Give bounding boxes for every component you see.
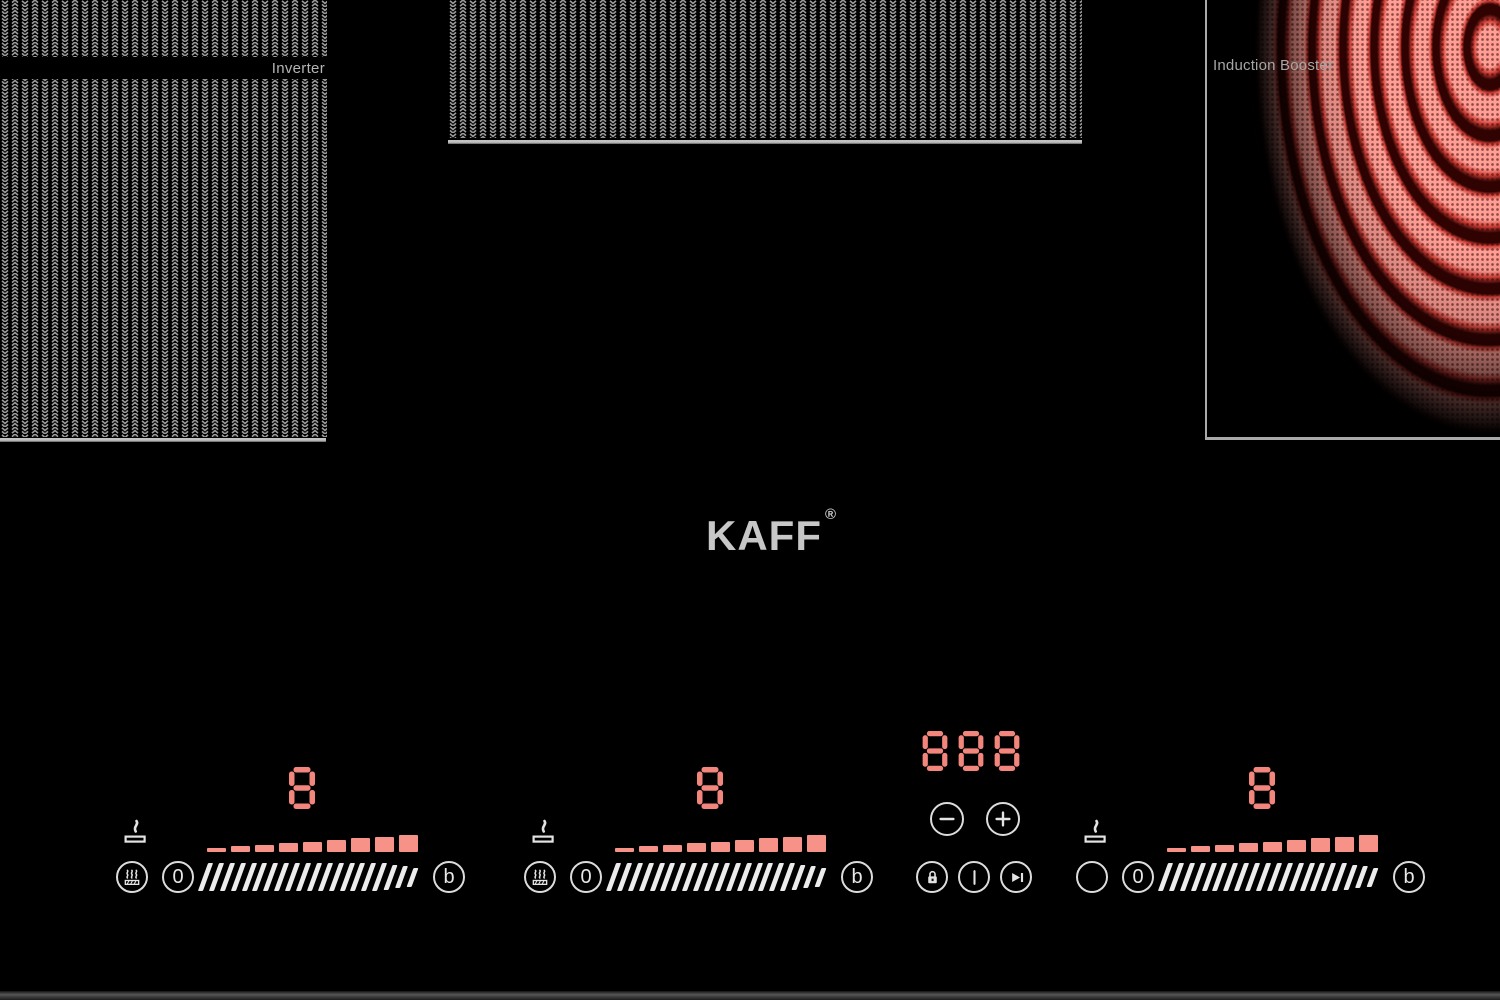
power-bar (1287, 840, 1306, 852)
inverter-label: Inverter (272, 60, 325, 77)
power-level-bars (615, 832, 837, 852)
zone-controls-front-right: 0 b (1070, 720, 1440, 905)
power-level-display (289, 767, 315, 809)
power-level-bars (1167, 832, 1389, 852)
minus-button[interactable] (930, 802, 964, 836)
power-bar (1359, 835, 1378, 852)
keep-warm-icon (530, 867, 550, 887)
power-bar (639, 846, 658, 852)
power-bar (375, 837, 394, 852)
booster-zone-frame: Induction Booster (1205, 0, 1500, 440)
zone-underline-left (0, 438, 326, 442)
plus-button[interactable] (986, 802, 1020, 836)
zone-select-button[interactable] (1076, 861, 1108, 893)
keep-warm-button[interactable] (524, 861, 556, 893)
inverter-band: Inverter (0, 57, 327, 79)
power-slider[interactable] (203, 863, 425, 891)
power-bar (279, 843, 298, 852)
boost-button[interactable]: b (841, 861, 873, 893)
power-bar (615, 848, 634, 852)
pause-play-button[interactable] (1000, 861, 1032, 893)
power-bar (735, 840, 754, 852)
power-bar (711, 842, 730, 853)
residual-heat-icon (124, 819, 146, 845)
boost-button[interactable]: b (433, 861, 465, 893)
power-level-bars (207, 832, 429, 852)
power-bar (351, 838, 370, 852)
power-bar (1167, 848, 1186, 852)
power-bar (807, 835, 826, 852)
slider-tick (814, 868, 825, 887)
slider-tick (406, 868, 417, 887)
slider-tick (803, 866, 816, 888)
off-button[interactable]: 0 (570, 861, 602, 893)
induction-booster-label: Induction Booster (1213, 57, 1333, 74)
power-bar (255, 845, 274, 852)
timer-display (922, 731, 1030, 771)
power-bar (399, 835, 418, 852)
power-button[interactable] (958, 861, 990, 893)
power-icon (965, 868, 984, 887)
power-bar (663, 845, 682, 852)
power-level-display (1249, 767, 1275, 809)
power-bar (327, 840, 346, 852)
lock-icon (923, 868, 942, 887)
cooktop-surface: Inverter Induction Booster KAFF® (0, 0, 1500, 1000)
power-bar (1239, 843, 1258, 852)
power-bar (1311, 838, 1330, 852)
timer-controls (890, 700, 1050, 905)
power-bar (207, 848, 226, 852)
off-button[interactable]: 0 (1122, 861, 1154, 893)
power-bar (1335, 837, 1354, 852)
slider-tick (1355, 866, 1368, 888)
zone-controls-front-center: 0 b (518, 720, 888, 905)
cooktop-front-edge (0, 991, 1500, 1000)
residual-heat-icon (1084, 819, 1106, 845)
brand-logo: KAFF® (706, 510, 837, 557)
power-bar (687, 843, 706, 852)
power-bar (1191, 846, 1210, 852)
keep-warm-icon (122, 867, 142, 887)
zone-controls-front-left: 0 b (110, 720, 480, 905)
off-button[interactable]: 0 (162, 861, 194, 893)
pause-play-icon (1007, 868, 1026, 887)
lock-button[interactable] (916, 861, 948, 893)
power-slider[interactable] (611, 863, 833, 891)
registered-mark: ® (825, 506, 837, 523)
keep-warm-button[interactable] (116, 861, 148, 893)
power-bar (1263, 842, 1282, 853)
power-bar (783, 837, 802, 852)
induction-coil-texture-center (448, 0, 1082, 138)
plus-icon (992, 808, 1014, 830)
power-slider[interactable] (1163, 863, 1385, 891)
power-bar (303, 842, 322, 853)
zone-underline-center (448, 140, 1082, 144)
boost-button[interactable]: b (1393, 861, 1425, 893)
residual-heat-icon (532, 819, 554, 845)
power-bar (759, 838, 778, 852)
power-bar (231, 846, 250, 852)
slider-tick (395, 866, 408, 888)
power-level-display (697, 767, 723, 809)
power-bar (1215, 845, 1234, 852)
slider-tick (1366, 868, 1377, 887)
minus-icon (936, 808, 958, 830)
